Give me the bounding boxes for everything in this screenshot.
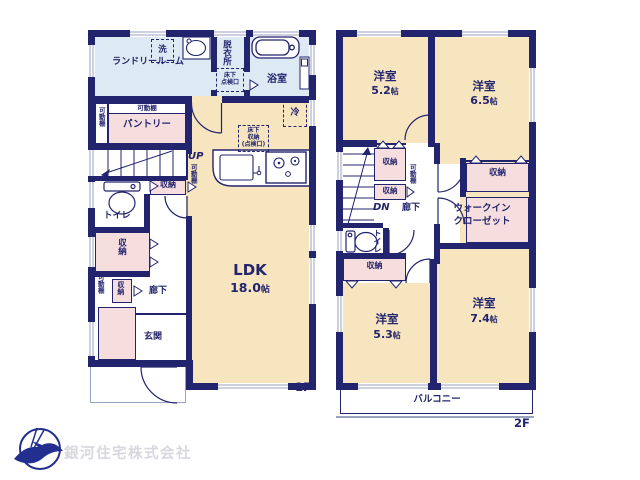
movable-shelf-label: 可動棚 — [97, 107, 104, 143]
storage-label: 収納 — [150, 181, 186, 190]
entrance-step-line — [136, 313, 186, 315]
room74-name-label: 洋室 — [453, 297, 515, 310]
window — [357, 30, 401, 37]
wall-segment — [95, 96, 192, 103]
room53-size-unit: 帖 — [393, 331, 401, 340]
window — [529, 68, 536, 122]
storage-label: 収納 — [116, 238, 126, 268]
storage-label: 収納 — [466, 169, 529, 179]
wall-segment — [343, 140, 377, 147]
balcony-label: バルコニー — [390, 395, 484, 406]
entrance-porch — [90, 367, 186, 403]
stairs-up-label: UP — [188, 151, 203, 162]
refrigerator-space: 冷 — [283, 100, 307, 127]
storage-label: 収納 — [116, 281, 124, 303]
folding-door-line — [466, 160, 529, 162]
laundry-room-label: ランドリールーム — [98, 57, 198, 67]
wall-segment — [144, 194, 150, 227]
entrance-label: 玄関 — [144, 332, 162, 342]
floor1-label: 1F — [295, 381, 311, 394]
wall-segment — [336, 30, 343, 390]
window — [441, 383, 499, 390]
wall-segment — [383, 228, 389, 253]
window — [88, 322, 95, 356]
room52-name-label: 洋室 — [355, 70, 415, 83]
folding-door-line — [377, 143, 406, 145]
dressing-room-label: 脱衣所 — [221, 40, 231, 82]
ldk-size-unit: 帖 — [261, 285, 270, 295]
window — [88, 45, 95, 77]
ldk-size-value: 18.0 — [230, 280, 261, 295]
company-logo-bird-icon — [14, 428, 63, 469]
room53-size-value: 5.3 — [373, 328, 393, 341]
floor2-label: 2F — [514, 417, 530, 430]
room74-size-unit: 帖 — [490, 315, 498, 324]
wall-segment — [186, 216, 192, 360]
ldk-name-label: LDK — [215, 262, 285, 279]
movable-shelf-label: 可動棚 — [408, 164, 415, 202]
window — [358, 383, 428, 390]
window — [88, 237, 95, 267]
window — [130, 30, 166, 37]
wall-segment — [343, 223, 383, 228]
storage-label: 収納 — [374, 158, 406, 166]
wall-segment — [428, 37, 435, 147]
room52-size-label: 5.2帖 — [355, 85, 415, 97]
wall-segment — [309, 30, 316, 390]
wall-segment — [434, 243, 529, 249]
wall-segment — [95, 144, 186, 150]
hallway-label: 廊下 — [149, 286, 167, 296]
room65-size-label: 6.5帖 — [452, 95, 516, 107]
wall-segment — [211, 37, 217, 72]
movable-shelf-label: 可動棚 — [189, 164, 196, 204]
room65-size-unit: 帖 — [490, 97, 498, 106]
wall-segment — [95, 227, 150, 232]
window — [309, 100, 316, 126]
pantry-label: パントリー — [108, 120, 186, 131]
wall-segment — [244, 37, 250, 72]
walk-in-closet-label: ウォークイン — [432, 204, 532, 215]
window — [336, 296, 343, 332]
walk-in-closet-label: クローゼット — [432, 217, 532, 228]
window — [309, 45, 316, 75]
storage-label: 収納 — [374, 187, 406, 195]
room65-name-label: 洋室 — [452, 80, 516, 93]
room74-size-value: 7.4 — [470, 312, 490, 325]
company-name: 銀河住宅株式会社 — [64, 442, 192, 463]
window — [309, 225, 316, 251]
window — [88, 182, 95, 208]
window — [529, 288, 536, 332]
toilet-label: トイレ — [96, 211, 138, 221]
movable-shelf-label: 可動棚 — [108, 105, 186, 112]
toilet-label: トイレ — [372, 229, 381, 257]
ldk-size-label: 18.0帖 — [215, 281, 285, 295]
underfloor-storage-hatch: 床下 収納 (点検口) — [238, 125, 269, 152]
movable-shelf-label: 可動棚 — [96, 274, 103, 308]
balcony-outer-line — [336, 416, 534, 418]
window — [336, 152, 343, 180]
stairs-down-label: DN — [373, 202, 390, 213]
room53-size-label: 5.3帖 — [356, 329, 418, 341]
hallway-label: 廊下 — [402, 203, 420, 213]
floor-plan-page: { "branding": { "company_name": "銀河住宅株式会… — [0, 0, 640, 480]
shoe-cabinet — [98, 307, 136, 360]
wall-segment — [430, 259, 437, 383]
underfloor-storage-label: (点検口) — [242, 142, 266, 149]
wall-segment — [186, 96, 192, 154]
window — [214, 30, 246, 37]
refrigerator-label: 冷 — [290, 108, 299, 118]
washer-label: 洗 — [158, 46, 167, 56]
window — [253, 30, 299, 37]
room74-size-label: 7.4帖 — [453, 313, 515, 325]
room53-name-label: 洋室 — [356, 313, 418, 326]
storage-label: 収納 — [343, 262, 406, 271]
room52-size-value: 5.2 — [371, 84, 391, 97]
wall-segment — [88, 360, 193, 367]
window — [218, 383, 288, 390]
window — [336, 231, 343, 251]
room65-size-value: 6.5 — [470, 94, 490, 107]
wall-segment — [186, 360, 193, 390]
window — [309, 258, 316, 304]
window — [88, 150, 95, 176]
window — [462, 30, 508, 37]
wall-segment — [434, 143, 440, 164]
room52-size-unit: 帖 — [391, 87, 399, 96]
bathroom-label: 浴室 — [247, 74, 307, 85]
